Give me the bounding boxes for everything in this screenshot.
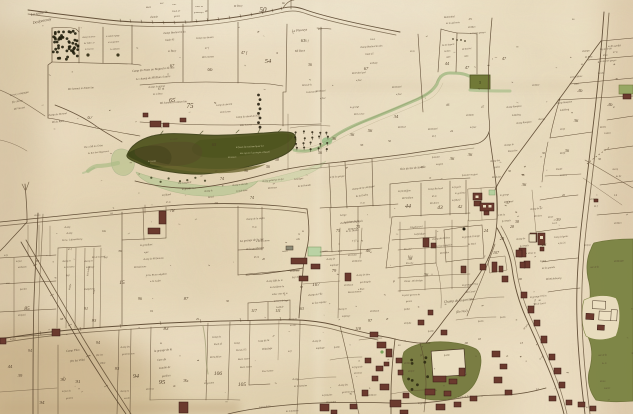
svg-text:grandespis: grandespis bbox=[194, 12, 204, 14]
svg-text:74: 74 bbox=[220, 176, 224, 181]
svg-text:m Bucy: m Bucy bbox=[370, 61, 379, 65]
svg-text:107: 107 bbox=[312, 283, 320, 288]
svg-text:43: 43 bbox=[437, 204, 443, 211]
svg-text:26: 26 bbox=[542, 242, 547, 247]
svg-text:107: 107 bbox=[493, 250, 500, 255]
svg-text:94: 94 bbox=[96, 340, 100, 345]
svg-text:66: 66 bbox=[208, 68, 214, 73]
svg-text:36 f: 36 f bbox=[594, 205, 598, 208]
svg-text:Ml B: Ml B bbox=[409, 51, 415, 53]
svg-text:29: 29 bbox=[196, 317, 200, 321]
svg-text:champ: champ bbox=[292, 378, 299, 381]
svg-text:36: 36 bbox=[574, 118, 579, 123]
svg-text:67: 67 bbox=[170, 63, 175, 68]
svg-text:75: 75 bbox=[336, 228, 340, 233]
svg-text:Puldel: Puldel bbox=[555, 168, 563, 172]
svg-text:36: 36 bbox=[118, 249, 122, 253]
svg-text:Camp: Camp bbox=[234, 342, 241, 345]
svg-text:56: 56 bbox=[368, 128, 373, 133]
svg-text:46: 46 bbox=[446, 103, 450, 107]
svg-text:lesfalope: lesfalope bbox=[316, 346, 325, 350]
svg-text:du fur: du fur bbox=[616, 175, 622, 178]
svg-text:63: 63 bbox=[300, 285, 304, 289]
svg-text:chemin: chemin bbox=[150, 15, 159, 19]
svg-text:36: 36 bbox=[598, 157, 602, 161]
svg-text:fage: fage bbox=[104, 256, 108, 259]
svg-text:117: 117 bbox=[251, 308, 258, 313]
svg-text:15: 15 bbox=[468, 17, 472, 21]
svg-text:36: 36 bbox=[424, 272, 429, 277]
svg-text:la fose: la fose bbox=[16, 260, 22, 263]
svg-text:93: 93 bbox=[115, 366, 120, 371]
svg-text:67 m: 67 m bbox=[158, 87, 165, 91]
svg-text:36: 36 bbox=[244, 168, 248, 173]
svg-text:Ml Buse: Ml Buse bbox=[397, 125, 406, 129]
svg-text:champ de: champ de bbox=[312, 339, 321, 343]
svg-text:65 f: 65 f bbox=[68, 248, 72, 251]
svg-text:champ de: champ de bbox=[326, 257, 335, 261]
svg-text:magion: magion bbox=[436, 162, 444, 166]
svg-text:45 m: 45 m bbox=[166, 200, 171, 204]
svg-text:79: 79 bbox=[332, 268, 337, 273]
svg-text:Ml fran: Ml fran bbox=[583, 243, 592, 247]
svg-text:36: 36 bbox=[226, 299, 230, 303]
svg-text:Ml fran: Ml fran bbox=[589, 197, 598, 201]
svg-text:56: 56 bbox=[266, 164, 270, 169]
svg-text:Ml fele: Ml fele bbox=[407, 370, 415, 374]
svg-text:26: 26 bbox=[562, 193, 566, 197]
svg-text:44: 44 bbox=[405, 203, 411, 210]
svg-text:35 m: 35 m bbox=[602, 363, 607, 365]
svg-text:la grange: la grange bbox=[350, 105, 359, 109]
svg-text:75: 75 bbox=[356, 224, 360, 229]
svg-text:a fose: a fose bbox=[356, 79, 362, 82]
svg-text:38: 38 bbox=[515, 219, 519, 224]
svg-text:85: 85 bbox=[24, 306, 30, 312]
svg-text:56 f: 56 f bbox=[432, 135, 436, 138]
svg-text:Ruvand: Ruvand bbox=[403, 247, 412, 251]
svg-text:40: 40 bbox=[262, 257, 266, 261]
svg-text:p: p bbox=[392, 279, 395, 283]
svg-text:la fugade: la fugade bbox=[452, 185, 461, 189]
svg-text:la fl: la fl bbox=[338, 250, 342, 253]
svg-text:111: 111 bbox=[275, 308, 280, 313]
svg-text:36: 36 bbox=[608, 103, 614, 108]
svg-text:annl: annl bbox=[6, 283, 10, 285]
svg-text:18: 18 bbox=[464, 341, 468, 345]
svg-text:65: 65 bbox=[169, 98, 175, 104]
svg-text:15: 15 bbox=[119, 280, 125, 286]
svg-text:94: 94 bbox=[133, 373, 139, 380]
svg-text:a fose: a fose bbox=[396, 93, 402, 96]
svg-text:5: 5 bbox=[479, 80, 481, 85]
svg-text:lesfalope: lesfalope bbox=[330, 263, 339, 267]
svg-text:la fillard: la fillard bbox=[452, 198, 461, 202]
svg-text:fage: fage bbox=[66, 274, 70, 277]
svg-text:a fose: a fose bbox=[320, 97, 326, 100]
svg-text:rue: rue bbox=[110, 213, 113, 215]
svg-text:45 f: 45 f bbox=[318, 28, 322, 31]
svg-text:78: 78 bbox=[170, 209, 176, 214]
svg-text:39: 39 bbox=[18, 373, 23, 378]
svg-text:96: 96 bbox=[138, 296, 142, 301]
svg-text:36: 36 bbox=[578, 89, 584, 94]
svg-text:25: 25 bbox=[500, 236, 505, 241]
svg-text:fanchel: fanchel bbox=[20, 288, 27, 291]
svg-text:40: 40 bbox=[420, 165, 424, 169]
svg-text:gasles: gasles bbox=[494, 165, 500, 169]
svg-text:91: 91 bbox=[150, 309, 154, 313]
svg-text:90: 90 bbox=[61, 378, 67, 383]
svg-text:67: 67 bbox=[88, 116, 94, 121]
svg-text:la fose: la fose bbox=[10, 338, 16, 341]
svg-text:36: 36 bbox=[360, 143, 364, 147]
svg-text:98: 98 bbox=[60, 317, 64, 321]
svg-text:34: 34 bbox=[394, 114, 399, 119]
svg-text:45 m: 45 m bbox=[603, 54, 608, 57]
svg-text:smalls: smalls bbox=[322, 251, 328, 253]
svg-text:50: 50 bbox=[260, 6, 268, 14]
svg-text:Ml: Ml bbox=[397, 345, 401, 347]
svg-text:91: 91 bbox=[84, 306, 88, 311]
svg-text:champ: champ bbox=[64, 226, 71, 229]
svg-text:Gerde: Gerde bbox=[598, 72, 605, 75]
svg-text:36: 36 bbox=[332, 136, 337, 141]
svg-text:93: 93 bbox=[92, 318, 97, 323]
svg-text:18: 18 bbox=[518, 277, 522, 281]
svg-text:lane: lane bbox=[160, 3, 164, 5]
svg-text:13: 13 bbox=[520, 341, 524, 345]
svg-text:63: 63 bbox=[300, 306, 304, 311]
svg-text:94: 94 bbox=[40, 401, 46, 406]
svg-text:118: 118 bbox=[355, 326, 361, 331]
svg-text:54: 54 bbox=[265, 58, 272, 65]
svg-text:smalls: smalls bbox=[282, 251, 288, 253]
svg-text:95: 95 bbox=[184, 379, 190, 384]
svg-text:la vande: la vande bbox=[148, 160, 156, 163]
svg-text:Caud. de: Caud. de bbox=[195, 6, 203, 8]
svg-text:Ml De: Ml De bbox=[599, 126, 606, 129]
svg-text:m Bucy: m Bucy bbox=[168, 49, 177, 53]
svg-text:36: 36 bbox=[542, 151, 546, 155]
svg-text:la fl: la fl bbox=[288, 350, 292, 353]
svg-text:56: 56 bbox=[388, 139, 392, 143]
svg-text:36: 36 bbox=[450, 156, 455, 161]
svg-text:24: 24 bbox=[484, 228, 489, 233]
svg-text:Giabot: Giabot bbox=[604, 132, 611, 135]
svg-text:91: 91 bbox=[76, 380, 81, 385]
svg-text:36: 36 bbox=[308, 62, 312, 67]
svg-text:44: 44 bbox=[445, 61, 449, 66]
svg-text:106: 106 bbox=[214, 371, 223, 377]
svg-text:champ: champ bbox=[66, 232, 73, 235]
svg-text:28: 28 bbox=[510, 224, 514, 229]
svg-text:29: 29 bbox=[214, 201, 218, 205]
svg-text:fardin: fardin bbox=[334, 346, 341, 349]
svg-text:Ml Bucy: Ml Bucy bbox=[294, 48, 306, 53]
svg-text:95: 95 bbox=[159, 379, 166, 386]
svg-text:87: 87 bbox=[184, 296, 189, 301]
svg-text:Ruvana: Ruvana bbox=[405, 261, 414, 265]
svg-text:85: 85 bbox=[36, 259, 40, 263]
svg-text:36: 36 bbox=[508, 169, 512, 173]
svg-text:Carr: Carr bbox=[172, 4, 176, 6]
svg-text:83: 83 bbox=[164, 327, 170, 332]
svg-text:65 m: 65 m bbox=[432, 195, 437, 198]
svg-text:67: 67 bbox=[301, 38, 306, 43]
svg-text:44: 44 bbox=[450, 129, 454, 133]
svg-text:75: 75 bbox=[187, 102, 195, 110]
svg-text:Ml fil: Ml fil bbox=[559, 128, 566, 132]
svg-text:36: 36 bbox=[350, 132, 355, 137]
svg-text:37 m: 37 m bbox=[613, 51, 618, 54]
svg-text:94: 94 bbox=[28, 348, 32, 353]
svg-text:Villa): Villa) bbox=[100, 361, 106, 365]
svg-text:105: 105 bbox=[238, 382, 247, 388]
svg-text:fardin: fardin bbox=[404, 308, 411, 311]
svg-text:58: 58 bbox=[275, 157, 279, 162]
svg-text:agee: agee bbox=[144, 251, 149, 254]
svg-text:39: 39 bbox=[556, 217, 561, 222]
svg-text:42: 42 bbox=[458, 204, 463, 209]
svg-text:Buem: Buem bbox=[146, 7, 152, 9]
svg-text:ville: ville bbox=[296, 238, 300, 241]
svg-text:47 f: 47 f bbox=[241, 50, 248, 55]
svg-text:mateau: mateau bbox=[560, 173, 568, 177]
svg-text:la fose: la fose bbox=[470, 126, 477, 129]
svg-text:65: 65 bbox=[212, 142, 217, 147]
svg-text:fardin: fardin bbox=[444, 354, 451, 357]
svg-text:lesfalope: lesfalope bbox=[342, 314, 350, 318]
svg-text:14: 14 bbox=[614, 193, 618, 197]
svg-text:36: 36 bbox=[468, 152, 473, 157]
svg-text:44: 44 bbox=[8, 364, 13, 369]
svg-text:56: 56 bbox=[318, 150, 322, 155]
svg-text:74: 74 bbox=[250, 195, 254, 200]
svg-text:fardin: fardin bbox=[428, 330, 435, 333]
svg-text:fontaine: fontaine bbox=[432, 155, 440, 159]
svg-text:36: 36 bbox=[522, 182, 527, 187]
svg-text:Camp: Camp bbox=[540, 259, 547, 263]
svg-text:gardin: gardin bbox=[406, 301, 413, 303]
svg-text:75 m: 75 m bbox=[252, 226, 257, 229]
svg-text:65 m: 65 m bbox=[254, 256, 259, 259]
